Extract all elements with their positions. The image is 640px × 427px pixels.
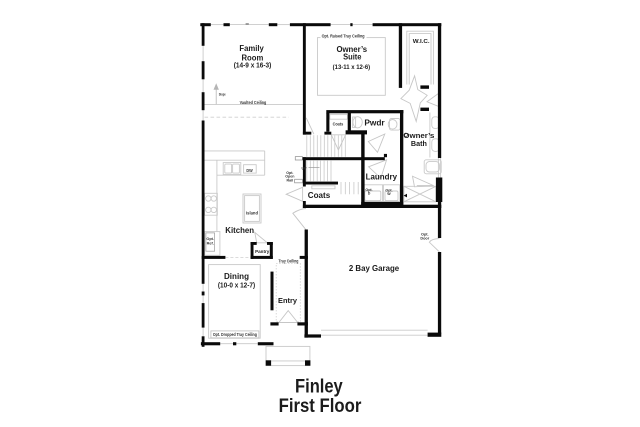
- svg-text:Laundry: Laundry: [366, 171, 398, 181]
- svg-text:First Floor: First Floor: [279, 396, 362, 417]
- svg-text:2 Bay Garage: 2 Bay Garage: [349, 264, 400, 273]
- svg-text:Opt. Dropped Tray Ceiling: Opt. Dropped Tray Ceiling: [213, 332, 257, 337]
- svg-text:Coats: Coats: [308, 191, 331, 200]
- svg-text:Opt.: Opt.: [206, 237, 214, 241]
- svg-text:W.I.C.: W.I.C.: [413, 39, 430, 45]
- svg-text:Door: Door: [420, 237, 429, 241]
- svg-text:D: D: [368, 192, 371, 196]
- svg-text:Slope: Slope: [219, 93, 226, 97]
- svg-text:Dining: Dining: [224, 271, 249, 281]
- svg-text:Pantry: Pantry: [255, 249, 270, 254]
- svg-text:Family: Family: [239, 44, 264, 53]
- svg-text:Ref.: Ref.: [207, 242, 214, 246]
- svg-text:Tray Ceiling: Tray Ceiling: [279, 258, 299, 263]
- svg-text:Vaulted Ceiling: Vaulted Ceiling: [240, 100, 267, 105]
- svg-text:W: W: [387, 192, 391, 196]
- svg-text:UP: UP: [302, 166, 308, 170]
- svg-text:(13-11 x 12-6): (13-11 x 12-6): [333, 64, 371, 71]
- svg-text:Pwdr: Pwdr: [364, 118, 384, 127]
- svg-text:(10-0 x 12-7): (10-0 x 12-7): [218, 282, 255, 289]
- svg-text:DW: DW: [246, 168, 252, 173]
- svg-text:Bath: Bath: [411, 139, 427, 148]
- svg-text:Opt. Raised Tray Ceiling: Opt. Raised Tray Ceiling: [322, 33, 365, 38]
- svg-text:Kitchen: Kitchen: [225, 225, 254, 235]
- svg-text:Suite: Suite: [343, 52, 362, 62]
- svg-text:Room: Room: [242, 53, 264, 62]
- svg-text:Rail: Rail: [287, 178, 294, 182]
- svg-text:Finley: Finley: [295, 376, 343, 397]
- svg-text:Island: Island: [246, 211, 258, 216]
- svg-text:(14-9 x 16-3): (14-9 x 16-3): [234, 63, 272, 70]
- svg-text:Entry: Entry: [278, 296, 298, 305]
- svg-text:Coats: Coats: [333, 122, 344, 127]
